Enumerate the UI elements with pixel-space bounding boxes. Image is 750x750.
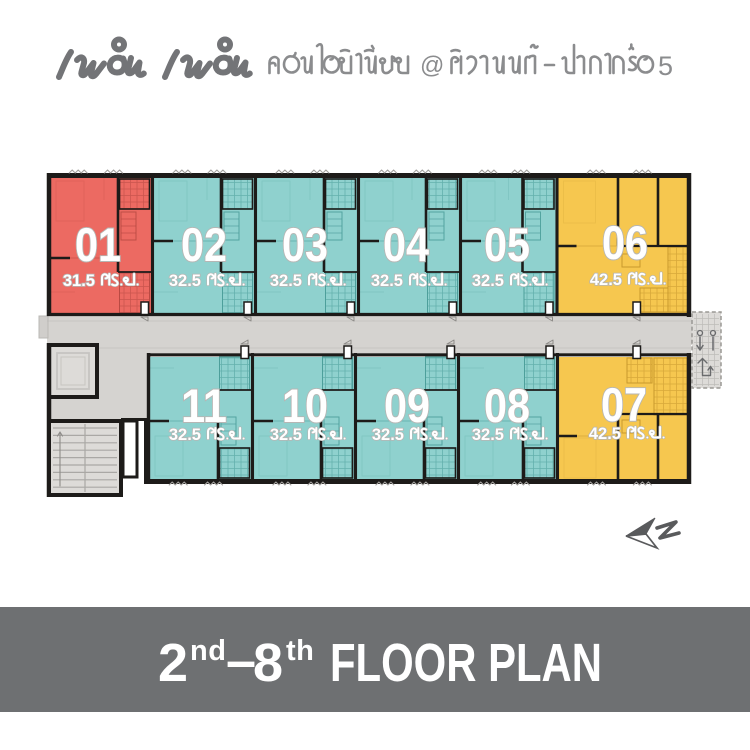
svg-text:03: 03 [282,218,328,271]
svg-text:01: 01 [75,218,121,271]
svg-text:10: 10 [282,379,328,432]
svg-text:07: 07 [601,378,647,431]
svg-text:05: 05 [484,218,530,271]
svg-text:31.5: 31.5 [63,272,95,290]
svg-text:32.5: 32.5 [270,272,302,290]
svg-text:02: 02 [181,218,227,271]
svg-text:32.5: 32.5 [270,426,302,444]
svg-text:08: 08 [484,379,530,432]
svg-text:09: 09 [384,379,430,432]
svg-text:32.5: 32.5 [472,426,504,444]
svg-text:42.5: 42.5 [589,425,621,443]
svg-text:32.5: 32.5 [372,426,404,444]
svg-text:42.5: 42.5 [590,271,622,289]
svg-text:32.5: 32.5 [371,272,403,290]
svg-text:2: 2 [158,633,188,693]
svg-text:5: 5 [658,51,673,81]
svg-text:–: – [226,631,256,691]
svg-text:8: 8 [253,633,283,693]
svg-text:04: 04 [383,218,429,271]
svg-text:11: 11 [181,379,227,432]
svg-text:nd: nd [190,635,226,667]
svg-text:32.5: 32.5 [472,272,504,290]
svg-text:32.5: 32.5 [169,272,201,290]
svg-text:FLOOR PLAN: FLOOR PLAN [330,633,602,693]
svg-text:06: 06 [602,216,648,269]
svg-text:32.5: 32.5 [169,426,201,444]
svg-text:th: th [286,635,314,667]
svg-text:@: @ [420,52,444,79]
